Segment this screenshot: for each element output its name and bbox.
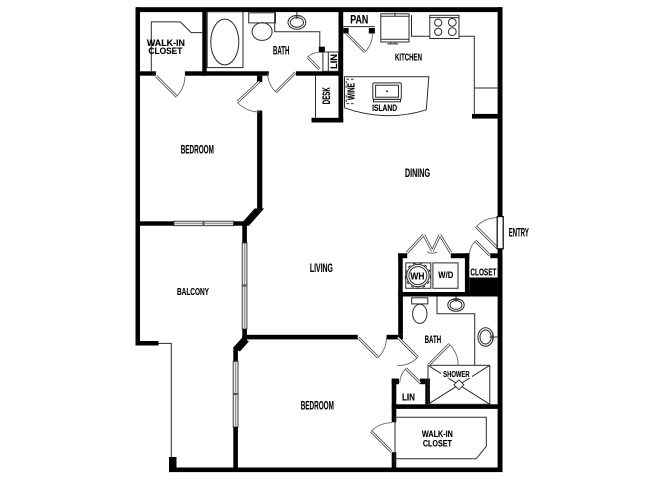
svg-text:LIN: LIN	[329, 54, 339, 69]
svg-text:BEDROOM: BEDROOM	[181, 143, 214, 157]
svg-text:KITCHEN: KITCHEN	[395, 53, 422, 64]
svg-text:BATH: BATH	[273, 46, 290, 58]
svg-text:WH: WH	[410, 271, 424, 282]
svg-text:ISLAND: ISLAND	[372, 103, 397, 113]
svg-text:CLOSET: CLOSET	[423, 438, 452, 449]
svg-text:LIVING: LIVING	[310, 261, 333, 275]
svg-text:PAN: PAN	[350, 13, 368, 27]
svg-text:BATH: BATH	[425, 334, 442, 346]
svg-text:LIN: LIN	[402, 393, 415, 404]
svg-text:DESK: DESK	[321, 87, 333, 104]
svg-text:CLOSET: CLOSET	[148, 46, 183, 56]
svg-text:BALCONY: BALCONY	[177, 286, 209, 298]
svg-text:WINE: WINE	[346, 83, 357, 100]
svg-text:DINING: DINING	[405, 166, 430, 180]
svg-text:BEDROOM: BEDROOM	[301, 398, 334, 412]
svg-text:CLOSET: CLOSET	[470, 267, 496, 278]
svg-text:ENTRY: ENTRY	[509, 227, 529, 239]
svg-text:SHOWER: SHOWER	[443, 370, 470, 379]
svg-text:W/D: W/D	[438, 270, 453, 281]
